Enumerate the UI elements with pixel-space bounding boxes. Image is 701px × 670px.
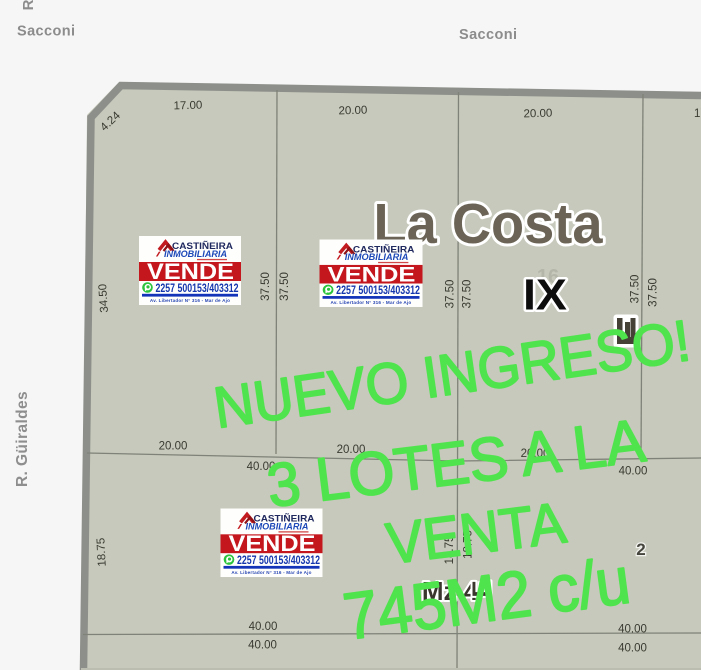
svg-text:37.50: 37.50 — [462, 280, 474, 309]
svg-text:37.50: 37.50 — [648, 278, 660, 307]
svg-text:40.00: 40.00 — [248, 640, 277, 652]
svg-text:17.00: 17.00 — [694, 108, 701, 120]
svg-text:20.00: 20.00 — [159, 441, 188, 453]
svg-text:37.50: 37.50 — [630, 275, 642, 304]
svg-text:Sacconi: Sacconi — [17, 24, 75, 40]
svg-text:Sacconi: Sacconi — [459, 27, 517, 43]
svg-text:IX: IX — [523, 271, 567, 320]
svg-text:20.00: 20.00 — [523, 108, 552, 121]
svg-text:37.50: 37.50 — [445, 280, 457, 309]
svg-text:R. Güiraldes: R. Güiraldes — [14, 391, 31, 487]
svg-text:18.75: 18.75 — [95, 537, 108, 566]
svg-text:40.00: 40.00 — [618, 643, 647, 655]
svg-text:40.00: 40.00 — [618, 624, 647, 636]
svg-text:37.50: 37.50 — [260, 272, 272, 301]
svg-text:40.00: 40.00 — [249, 621, 278, 633]
svg-text:20.00: 20.00 — [338, 105, 367, 118]
svg-text:2: 2 — [636, 540, 645, 559]
svg-text:37.50: 37.50 — [279, 272, 291, 301]
svg-text:R: R — [20, 0, 37, 10]
svg-text:17.00: 17.00 — [173, 100, 202, 113]
svg-text:34.50: 34.50 — [97, 283, 111, 313]
